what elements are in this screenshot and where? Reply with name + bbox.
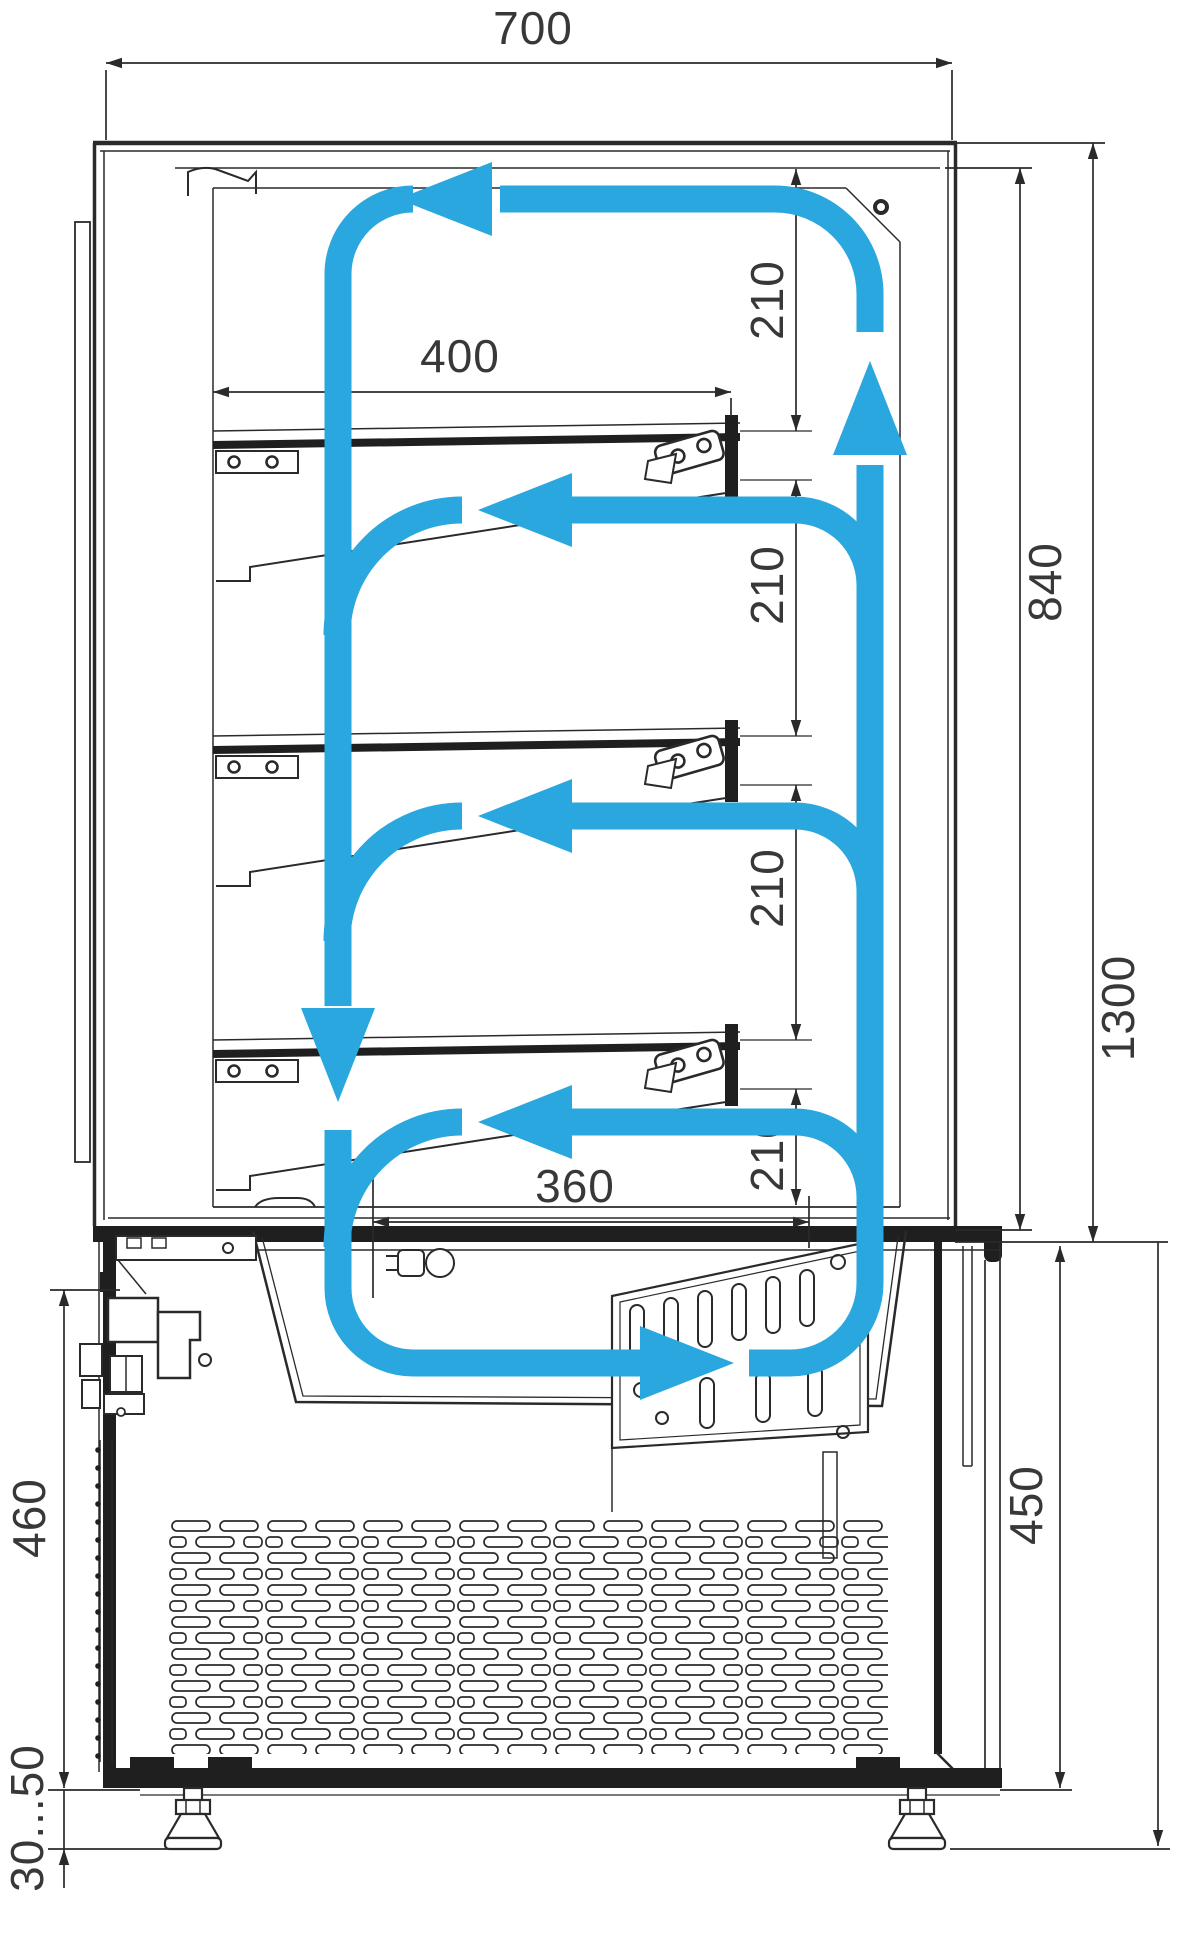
ceiling-screw: [875, 201, 887, 213]
airflow-arrow-gap4-icon: [478, 1085, 572, 1159]
corner-bracket: [188, 168, 256, 196]
dim-210-group: 210 210 210 210: [740, 169, 812, 1205]
technical-drawing-canvas: 700 400 360 210: [0, 0, 1179, 1952]
rear-drain-tube: [963, 1246, 972, 1466]
dim-210-label-1: 210: [741, 260, 793, 340]
display-case-section-drawing: 700 400 360 210: [0, 0, 1179, 1952]
adjustable-foot-right: [889, 1788, 945, 1849]
dim-400-label: 400: [420, 330, 500, 382]
dim-210-label-2: 210: [741, 545, 793, 625]
hinge-block: [100, 1272, 112, 1292]
dim-450: 450: [950, 1242, 1170, 1849]
shelf-3: [213, 1024, 740, 1190]
dim-feet-label: 30...50: [1, 1744, 53, 1892]
dim-1300: 1300: [955, 143, 1168, 1242]
airflow-branch-gap3: [572, 816, 870, 931]
airflow-connector-gap2: [337, 510, 462, 635]
dim-210-label-3: 210: [741, 848, 793, 928]
airflow-arrow-gap2-icon: [478, 473, 572, 547]
dim-400: 400: [213, 330, 731, 417]
airflow-arrowheads: [301, 162, 907, 1400]
ventilation-grille: [168, 1516, 888, 1754]
dim-450-label: 450: [1000, 1465, 1052, 1545]
airflow-circulation: [301, 162, 907, 1400]
airflow-connector-gap3: [337, 816, 462, 941]
airflow-arrow-up-icon: [833, 361, 907, 455]
airflow-branch-gap2: [572, 510, 870, 625]
airflow-top-band: [500, 199, 870, 332]
dim-840-label: 840: [1019, 542, 1071, 622]
dim-360-label: 360: [535, 1160, 615, 1212]
dim-700: 700: [106, 2, 952, 140]
dim-700-label: 700: [493, 2, 573, 54]
airflow-arrow-top-left-icon: [398, 162, 492, 236]
tray-nozzle: [386, 1249, 454, 1277]
dim-460-label: 460: [3, 1478, 55, 1558]
airflow-branch-gap4: [572, 1122, 870, 1237]
glass-door-panel: [75, 222, 90, 1162]
adjustable-foot-left: [165, 1788, 221, 1849]
dim-1300-label: 1300: [1092, 955, 1144, 1061]
airflow-arrow-gap3-icon: [478, 779, 572, 853]
dim-840: 840: [945, 168, 1071, 1230]
